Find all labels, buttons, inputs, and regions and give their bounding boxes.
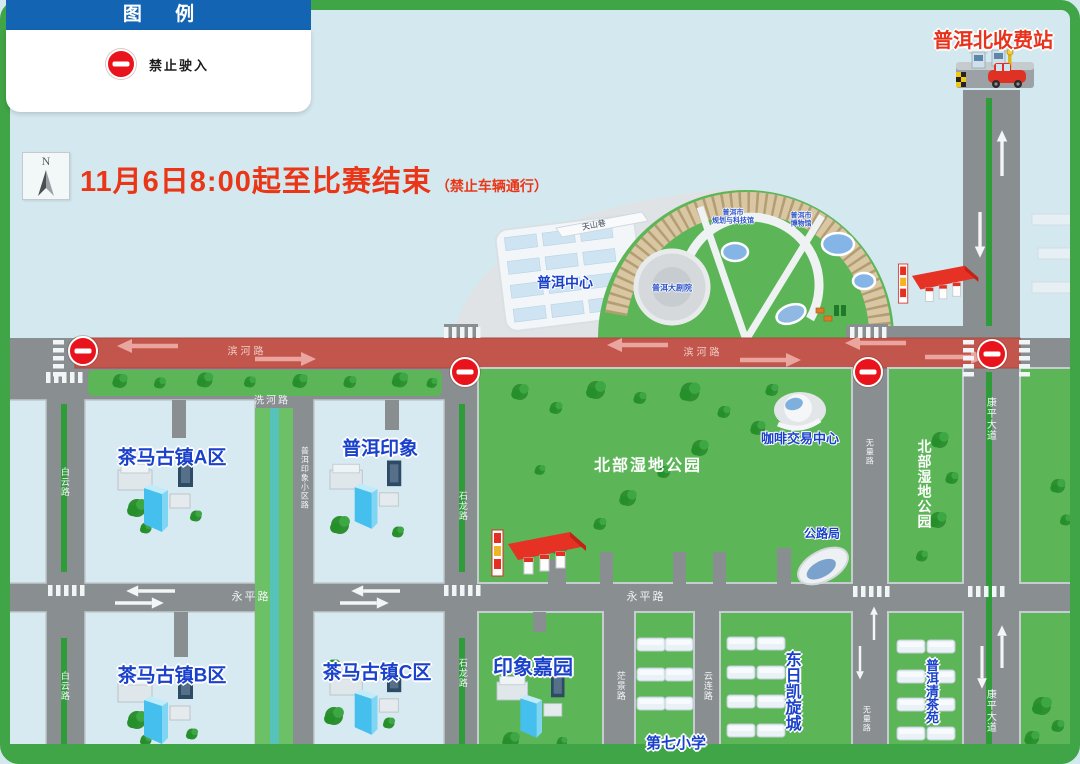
- label-road-binhe-west: 滨河路: [228, 348, 267, 359]
- road-closure-map: 普洱中心 普洱大剧院 普洱市 规划与科技馆 普洱市 博物馆 天山巷 滨河路 滨河…: [0, 0, 1080, 764]
- label-planning-hall: 普洱市 规划与科技馆: [712, 209, 754, 224]
- label-road-shilong-north: 石龙路: [457, 491, 467, 521]
- label-wetland-park: 北部湿地公园: [594, 457, 702, 474]
- legend-item-no-entry: 禁止驶入: [106, 49, 209, 79]
- label-dongri-city: 东日凯旋城: [782, 651, 799, 731]
- map-base: [0, 0, 1080, 764]
- no-entry-icon: [450, 357, 480, 387]
- compass-north-label: N: [23, 154, 69, 169]
- label-museum: 普洱市 博物馆: [791, 212, 812, 227]
- label-chama-c: 茶马古镇C区: [323, 664, 432, 685]
- legend: 图 例 禁止驶入: [6, 0, 311, 112]
- no-entry-icon: [977, 339, 1007, 369]
- label-seventh-school: 第七小学: [646, 736, 706, 752]
- label-road-mangjing: 茫景路: [615, 671, 625, 701]
- label-coffee-center: 咖啡交易中心: [761, 432, 839, 446]
- kangping-upper-road: [963, 90, 1020, 340]
- label-road-wuliang-north: 无量路: [865, 439, 874, 466]
- river-canal: [255, 408, 293, 756]
- label-road-shilong-south: 石龙路: [457, 658, 467, 688]
- banner-main-text: 11月6日8:00起至比赛结束: [80, 158, 432, 200]
- legend-title: 图 例: [6, 0, 311, 30]
- label-road-kangping-north: 康平大道: [984, 397, 995, 441]
- label-puer-center: 普洱中心: [537, 275, 593, 290]
- roadside-green-strip: [88, 370, 442, 396]
- label-chama-b: 茶马古镇B区: [118, 667, 227, 688]
- coffee-center-building: [774, 392, 826, 428]
- label-road-wuliang-south: 无量路: [862, 706, 871, 733]
- label-road-baiyun-south: 白云路: [59, 671, 69, 701]
- label-puer-impression: 普洱印象: [342, 440, 418, 461]
- label-chama-a: 茶马古镇A区: [118, 449, 227, 470]
- label-road-baiyun-north: 白云路: [59, 467, 69, 497]
- label-toll-station: 普洱北收费站: [933, 31, 1053, 53]
- compass: N: [22, 152, 70, 200]
- label-grand-theater: 普洱大剧院: [652, 285, 692, 294]
- no-entry-icon: [68, 336, 98, 366]
- label-road-yongping-east: 永平路: [627, 592, 666, 604]
- no-entry-icon: [853, 357, 883, 387]
- compass-needle-icon: [23, 169, 69, 199]
- label-road-kangping-south: 康平大道: [984, 689, 995, 733]
- label-road-impression-estate: 普洱印象小区路: [300, 447, 309, 510]
- banner-sub-text: （禁止车辆通行）: [436, 176, 548, 196]
- label-road-yongping-west: 永平路: [232, 592, 271, 604]
- label-yinxiang-jiayuan: 印象嘉园: [493, 658, 573, 680]
- label-road-binhe-east: 滨河路: [684, 349, 723, 360]
- label-road-yunlian: 云连路: [702, 671, 712, 701]
- banner: 11月6日8:00起至比赛结束 （禁止车辆通行）: [80, 158, 548, 200]
- label-highway-bureau: 公路局: [804, 528, 840, 541]
- legend-item-label: 禁止驶入: [149, 55, 209, 74]
- label-road-xihe: 洗河路: [254, 397, 290, 408]
- label-qingcha-garden: 普洱清茶苑: [924, 659, 938, 724]
- label-wetland-park-east: 北部湿地公园: [916, 439, 931, 529]
- no-entry-icon: [106, 49, 136, 79]
